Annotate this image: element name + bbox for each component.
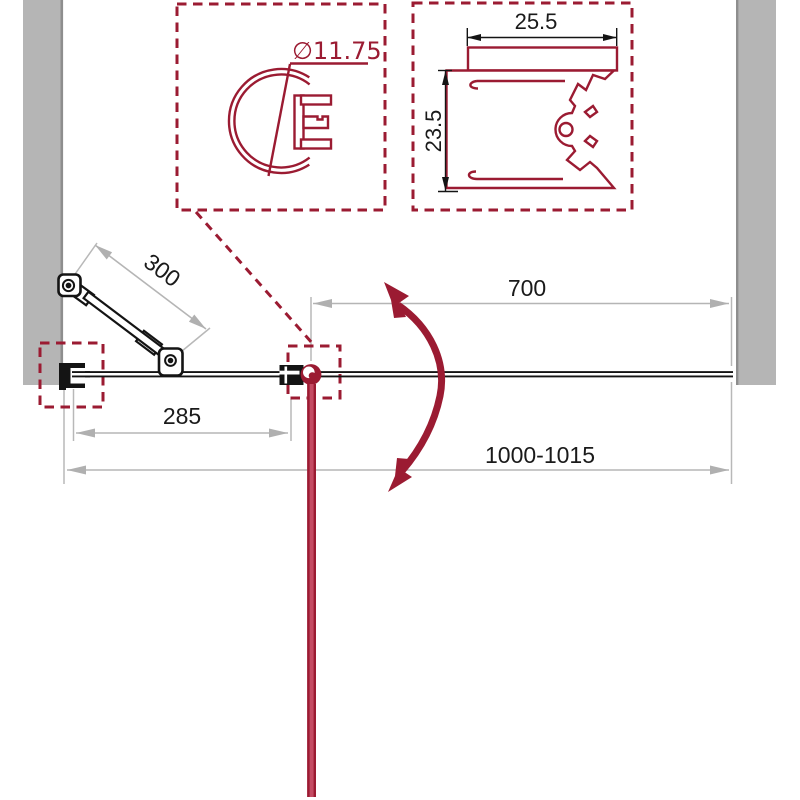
wall-clamp [59, 363, 90, 390]
support-arm [59, 275, 183, 376]
leader-dashed-line [196, 212, 313, 344]
door-open-line [307, 384, 316, 797]
door-width-label: 700 [487, 277, 567, 300]
total-width-label: 1000-1015 [460, 444, 620, 467]
drawing-geometry [0, 0, 800, 800]
hinge-pivot [301, 364, 322, 385]
arm-wall-bracket [59, 275, 81, 297]
profile-width-label: 25.5 [506, 11, 566, 33]
dimension-285-line [76, 429, 288, 438]
swing-arrow [384, 282, 442, 492]
wall-profile-drawing [447, 48, 618, 189]
profile-height-label: 23.5 [423, 101, 445, 161]
round-profile-drawing [229, 64, 368, 177]
arm-glass-fitting [159, 349, 183, 376]
diameter-label: ∅11.75 [292, 39, 382, 63]
hinge-assembly [280, 364, 322, 385]
technical-drawing: ∅11.75 25.5 23.5 300 700 285 1000-1015 [0, 0, 800, 800]
left-wall [23, 0, 63, 385]
fixed-width-label: 285 [142, 405, 222, 428]
right-wall [736, 0, 776, 385]
